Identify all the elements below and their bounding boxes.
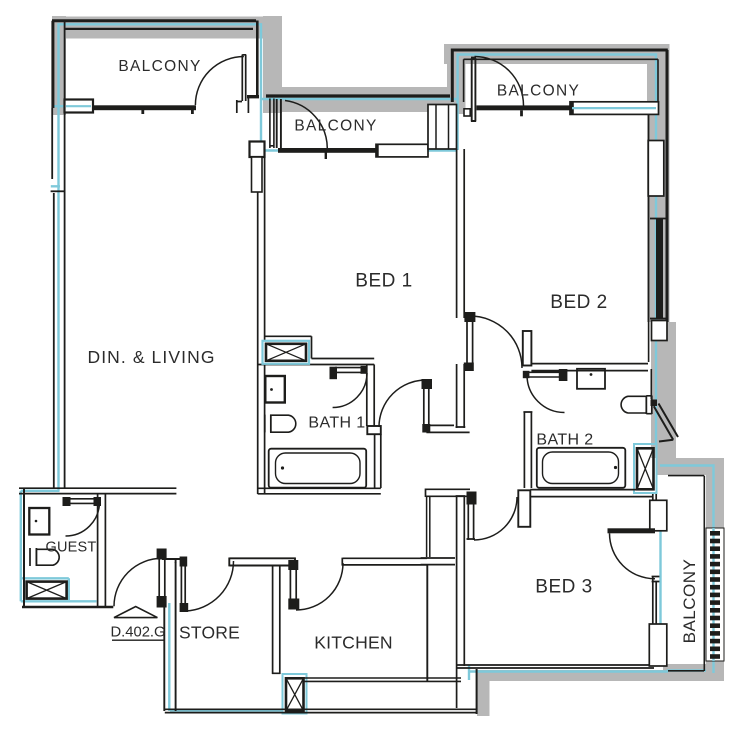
svg-text:BED 1: BED 1 (355, 271, 412, 292)
svg-text:BALCONY: BALCONY (680, 559, 699, 644)
svg-text:GUEST: GUEST (46, 540, 97, 556)
svg-text:BALCONY: BALCONY (118, 58, 201, 75)
svg-text:BED 2: BED 2 (550, 292, 607, 313)
svg-text:BALCONY: BALCONY (497, 83, 580, 100)
svg-text:KITCHEN: KITCHEN (314, 633, 393, 653)
svg-text:BATH 2: BATH 2 (536, 432, 593, 449)
svg-text:BALCONY: BALCONY (294, 118, 377, 135)
svg-text:BATH 1: BATH 1 (308, 415, 365, 432)
svg-text:DIN. & LIVING: DIN. & LIVING (87, 347, 215, 367)
svg-text:D.402.G: D.402.G (110, 625, 165, 641)
svg-text:STORE: STORE (179, 623, 240, 643)
svg-text:BED 3: BED 3 (535, 577, 592, 598)
